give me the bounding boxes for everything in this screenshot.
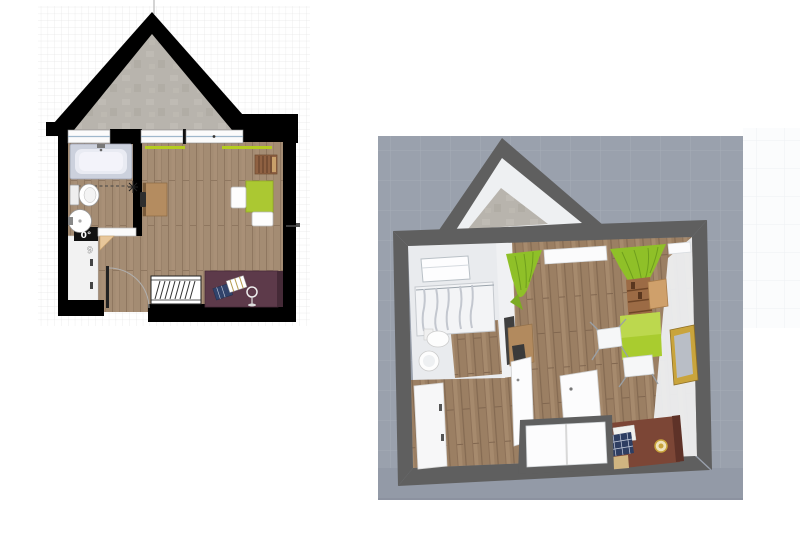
white-chair[interactable]	[252, 212, 273, 226]
white-chair[interactable]	[231, 187, 246, 208]
wall-bottom-left[interactable]	[58, 300, 104, 316]
sink-3d[interactable]	[419, 351, 439, 371]
green-desk-3d[interactable]	[620, 312, 662, 360]
bed[interactable]	[205, 271, 283, 307]
desk-chair[interactable]	[140, 192, 146, 207]
window-left[interactable]	[141, 130, 183, 143]
curtain-rod[interactable]	[145, 146, 185, 149]
bathtub-shower-3d[interactable]	[415, 282, 495, 336]
window-mullion	[183, 129, 186, 144]
window-bathroom[interactable]	[68, 130, 110, 143]
wall-right[interactable]	[283, 135, 296, 322]
desk[interactable]	[140, 183, 167, 216]
corridor-mark	[90, 259, 93, 266]
window-header	[668, 242, 691, 254]
wall-shelf[interactable]	[255, 155, 277, 174]
corridor-floor	[68, 236, 98, 302]
wall-left[interactable]	[58, 126, 68, 314]
wall-bathroom-divider[interactable]	[133, 129, 142, 236]
cabinet-3d[interactable]	[414, 383, 447, 469]
bottom-window-3d[interactable]	[518, 415, 614, 474]
headboard	[277, 271, 283, 307]
design-canvas-svg[interactable]: 0° 9	[0, 0, 800, 537]
toilet[interactable]	[70, 184, 99, 206]
gold-lamp-3d[interactable]	[655, 440, 667, 452]
curtain-rod[interactable]	[222, 146, 272, 149]
floor-plan-2d[interactable]: 0° 9	[38, 0, 310, 326]
view-3d[interactable]	[378, 128, 800, 500]
lamp-symbol-icon	[128, 181, 138, 193]
corridor-mark	[90, 282, 93, 289]
ground-faint-tiles	[743, 128, 800, 328]
bathtub[interactable]	[70, 144, 132, 179]
door-size-label: 9	[87, 246, 93, 256]
sink[interactable]	[68, 210, 92, 233]
gold-mirror-3d[interactable]	[670, 325, 698, 385]
radiator[interactable]	[151, 276, 201, 304]
bathroom-window-3d[interactable]	[421, 256, 470, 282]
window-right[interactable]	[186, 130, 243, 143]
design-canvas[interactable]: 0° 9	[0, 0, 800, 537]
door-angle-label: 0°	[81, 231, 92, 241]
